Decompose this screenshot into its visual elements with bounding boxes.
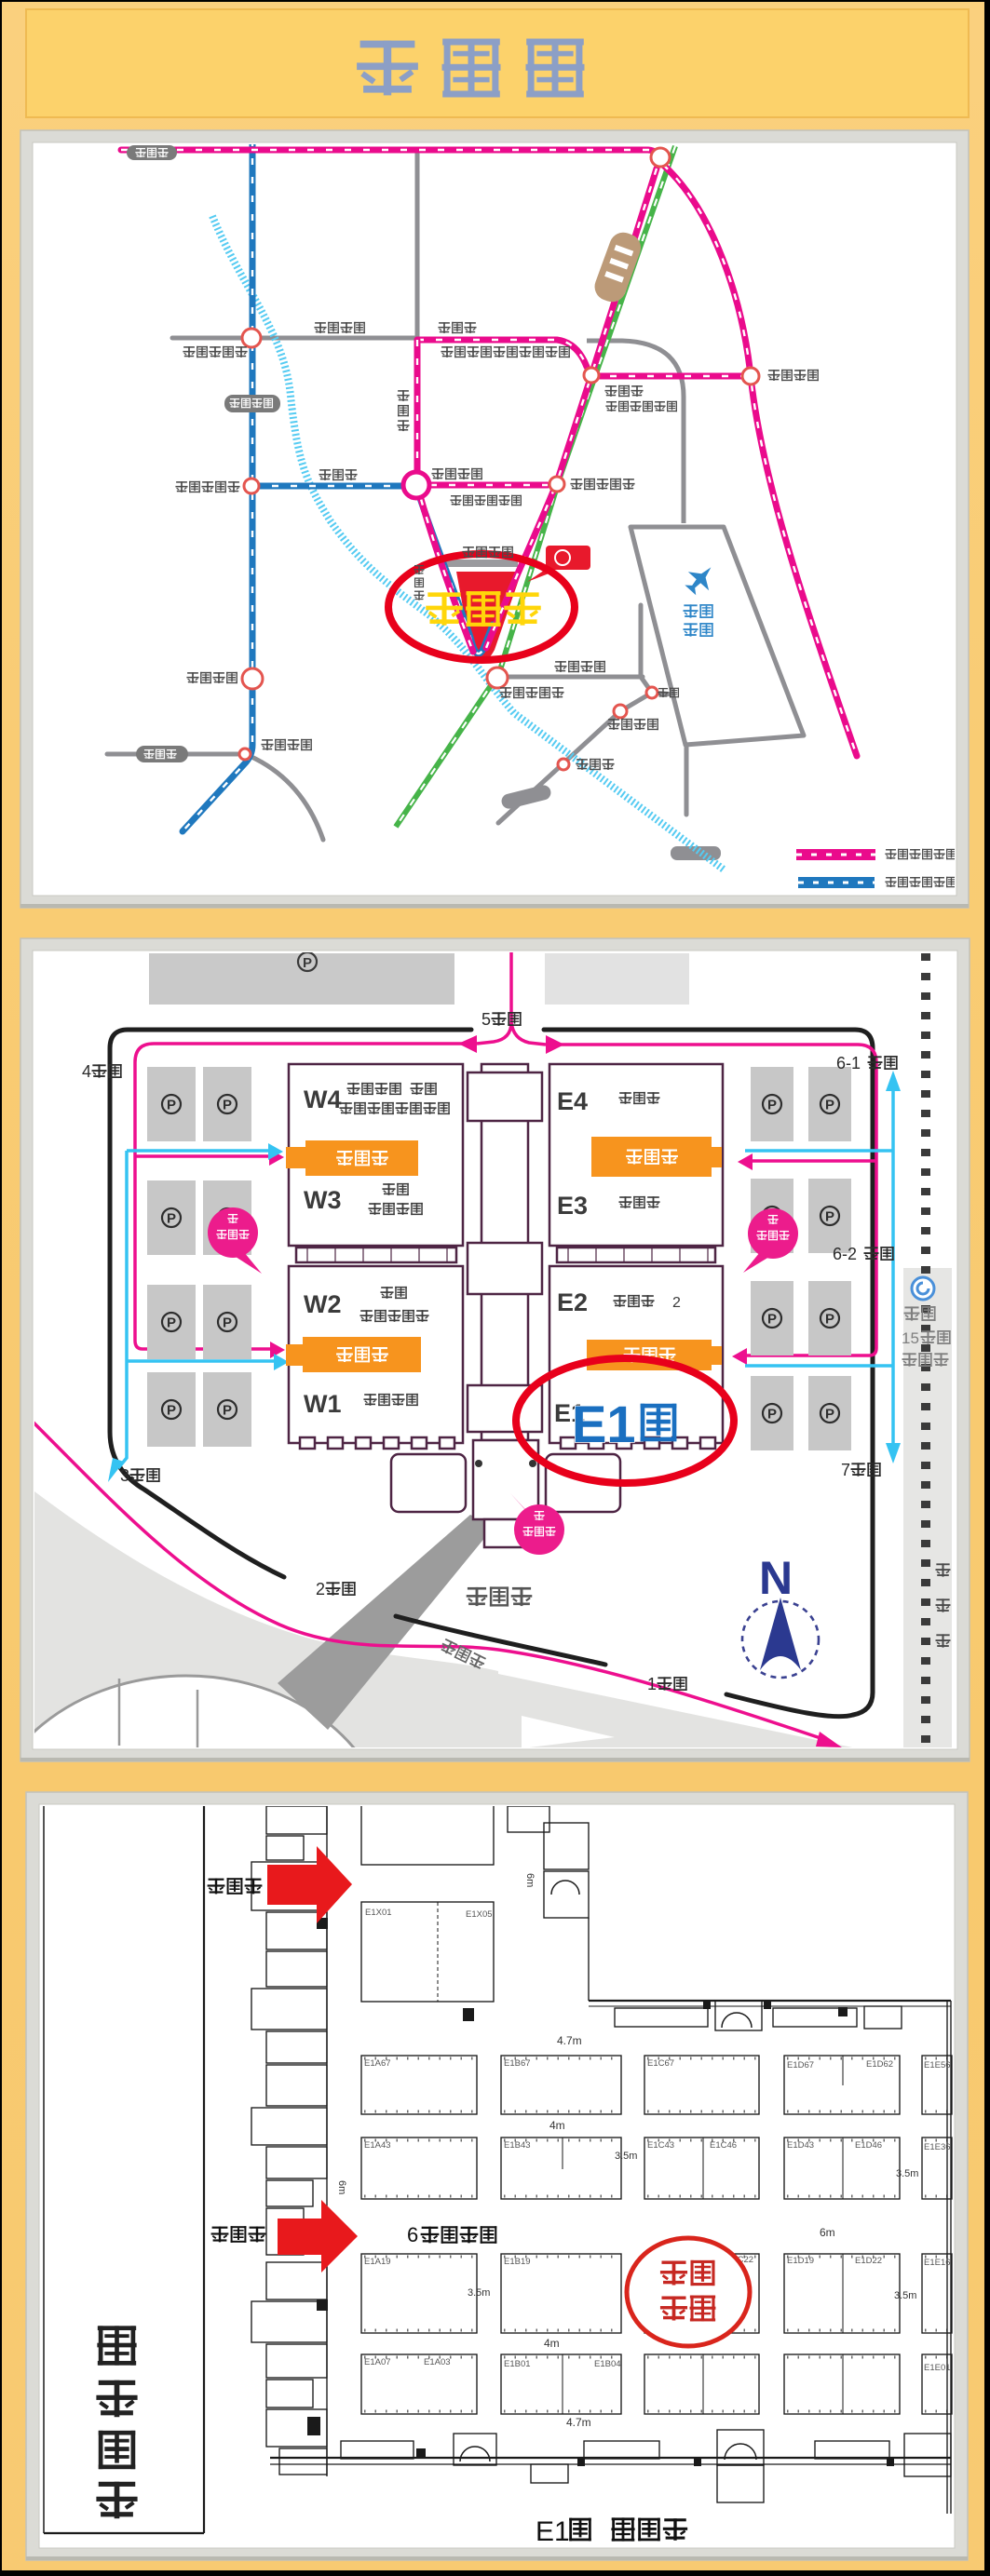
svg-text:4m: 4m <box>549 2119 565 2132</box>
svg-text:3.5m: 3.5m <box>468 2287 490 2299</box>
svg-text:E1A07: E1A07 <box>364 2357 391 2367</box>
svg-text:6m: 6m <box>336 2180 347 2194</box>
svg-text:E1D43: E1D43 <box>787 2140 814 2151</box>
svg-text:E1E01: E1E01 <box>924 2363 951 2373</box>
svg-text:E1C46: E1C46 <box>710 2140 737 2151</box>
svg-text:6m: 6m <box>820 2226 835 2239</box>
svg-text:E1X05: E1X05 <box>466 1909 493 1920</box>
svg-text:E1B04: E1B04 <box>594 2359 621 2369</box>
svg-text:E1D46: E1D46 <box>855 2140 882 2151</box>
svg-text:E1A67: E1A67 <box>364 2058 391 2069</box>
svg-text:E1D67: E1D67 <box>787 2060 814 2070</box>
svg-text:3.5m: 3.5m <box>896 2168 918 2179</box>
svg-text:E1E36: E1E36 <box>924 2142 951 2152</box>
svg-text:E1D19: E1D19 <box>787 2256 814 2266</box>
svg-text:4m: 4m <box>544 2337 560 2350</box>
svg-text:E1C43: E1C43 <box>647 2140 674 2151</box>
svg-text:6m: 6m <box>524 1873 536 1887</box>
svg-text:E1A19: E1A19 <box>364 2257 391 2267</box>
svg-text:E1B43: E1B43 <box>504 2140 531 2151</box>
svg-text:4.7m: 4.7m <box>557 2034 582 2047</box>
svg-text:E1B67: E1B67 <box>504 2058 531 2069</box>
svg-text:E1B01: E1B01 <box>504 2359 531 2369</box>
svg-text:E1B19: E1B19 <box>504 2257 531 2267</box>
svg-text:E1D22: E1D22 <box>855 2256 882 2266</box>
svg-text:3.5m: 3.5m <box>615 2151 637 2162</box>
svg-text:E1A43: E1A43 <box>364 2140 391 2151</box>
svg-text:E1E16: E1E16 <box>924 2258 951 2268</box>
svg-text:E1C67: E1C67 <box>647 2058 674 2069</box>
svg-text:E1A03: E1A03 <box>424 2357 451 2367</box>
svg-text:E1X01: E1X01 <box>365 1908 392 1918</box>
svg-text:E1E56: E1E56 <box>924 2060 951 2070</box>
svg-text:E1D62: E1D62 <box>866 2059 893 2070</box>
svg-text:E1: E1 <box>536 2516 570 2547</box>
svg-text:3.5m: 3.5m <box>894 2290 916 2301</box>
svg-text:4.7m: 4.7m <box>566 2416 591 2429</box>
svg-text:6: 6 <box>407 2223 418 2246</box>
